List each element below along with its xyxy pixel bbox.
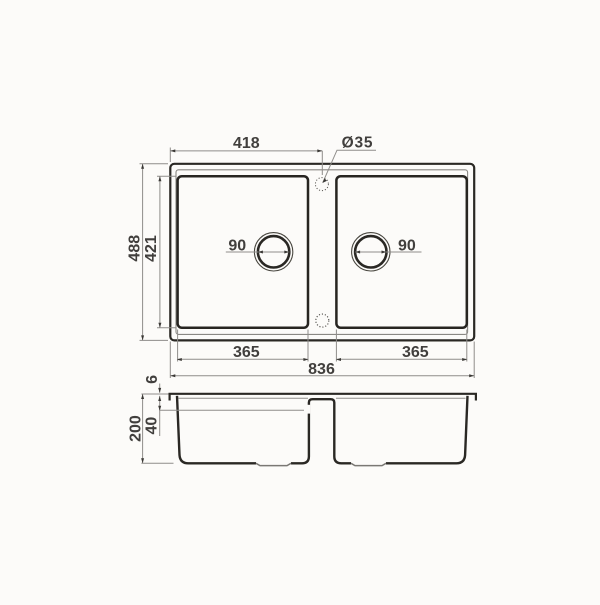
svg-text:200: 200 (127, 415, 144, 442)
svg-text:Ø35: Ø35 (342, 134, 374, 151)
svg-text:365: 365 (402, 344, 429, 361)
svg-text:418: 418 (233, 135, 260, 152)
svg-text:90: 90 (398, 238, 416, 255)
svg-text:6: 6 (144, 375, 161, 384)
svg-text:488: 488 (126, 235, 143, 262)
svg-text:90: 90 (228, 238, 246, 255)
svg-text:365: 365 (233, 344, 260, 361)
svg-text:421: 421 (143, 235, 160, 262)
svg-text:40: 40 (143, 417, 160, 435)
svg-text:836: 836 (308, 361, 335, 378)
